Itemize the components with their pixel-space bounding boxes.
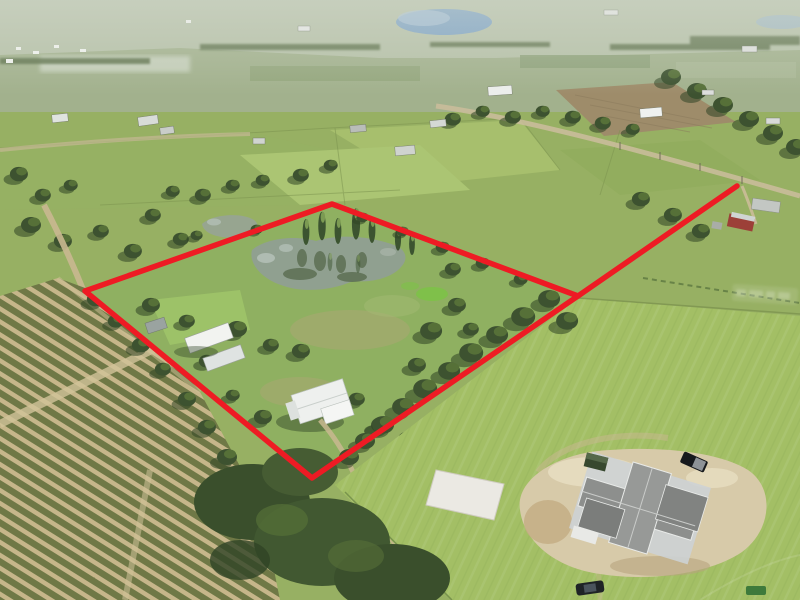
mower: [746, 586, 766, 595]
aerial-photo: [0, 0, 800, 600]
haze-overlay: [0, 0, 800, 95]
algae-patch: [416, 287, 448, 301]
